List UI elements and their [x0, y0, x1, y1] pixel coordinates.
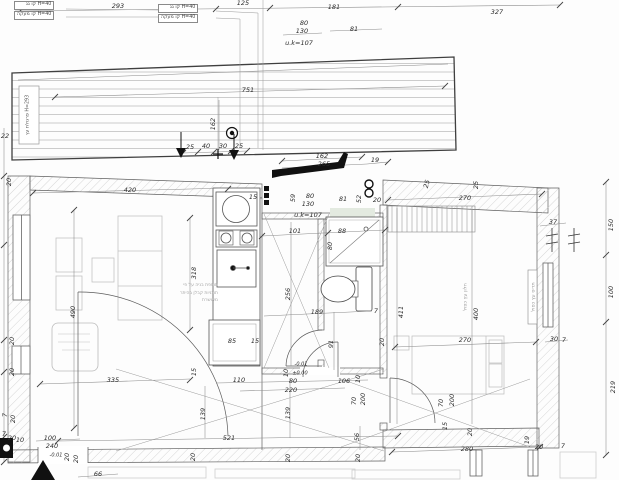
- pergola-height: H=293: [26, 95, 31, 112]
- note-line: תוכניות קבלן בהיתר: [174, 290, 218, 298]
- pergola-name: פרגולת עץ: [26, 113, 31, 135]
- floor-plan: H=40 קו גג H=40 קו מעקה H=40 קו גג H=40 …: [0, 0, 619, 480]
- bedroom-furniture: [394, 336, 504, 394]
- note-line: תוספת בניה על פי: [174, 282, 218, 290]
- roof-height-tag: H=40 קו גג H=40 קו מעקה: [14, 1, 54, 21]
- note-line: מאושרת: [174, 297, 218, 305]
- roof-height-tag: H=40 קו גג H=40 קו מעקה: [158, 4, 198, 24]
- kitchen-fixtures: [209, 188, 260, 366]
- tag-line: H=40 קו גג: [158, 4, 198, 13]
- permit-note: תוספת בניה על פי תוכניות קבלן בהיתר מאוש…: [174, 282, 218, 305]
- closet: [388, 206, 475, 232]
- tag-line: H=40 קו מעקה: [14, 11, 54, 20]
- tag-line: H=40 קו מעקה: [158, 14, 198, 23]
- walls: [8, 176, 559, 463]
- pergola-label: פרגולת עץ H=293: [26, 86, 33, 144]
- entry-lintel: [330, 208, 375, 217]
- floor-plan-linework: [0, 0, 619, 480]
- tag-line: H=40 קו גג: [14, 1, 54, 10]
